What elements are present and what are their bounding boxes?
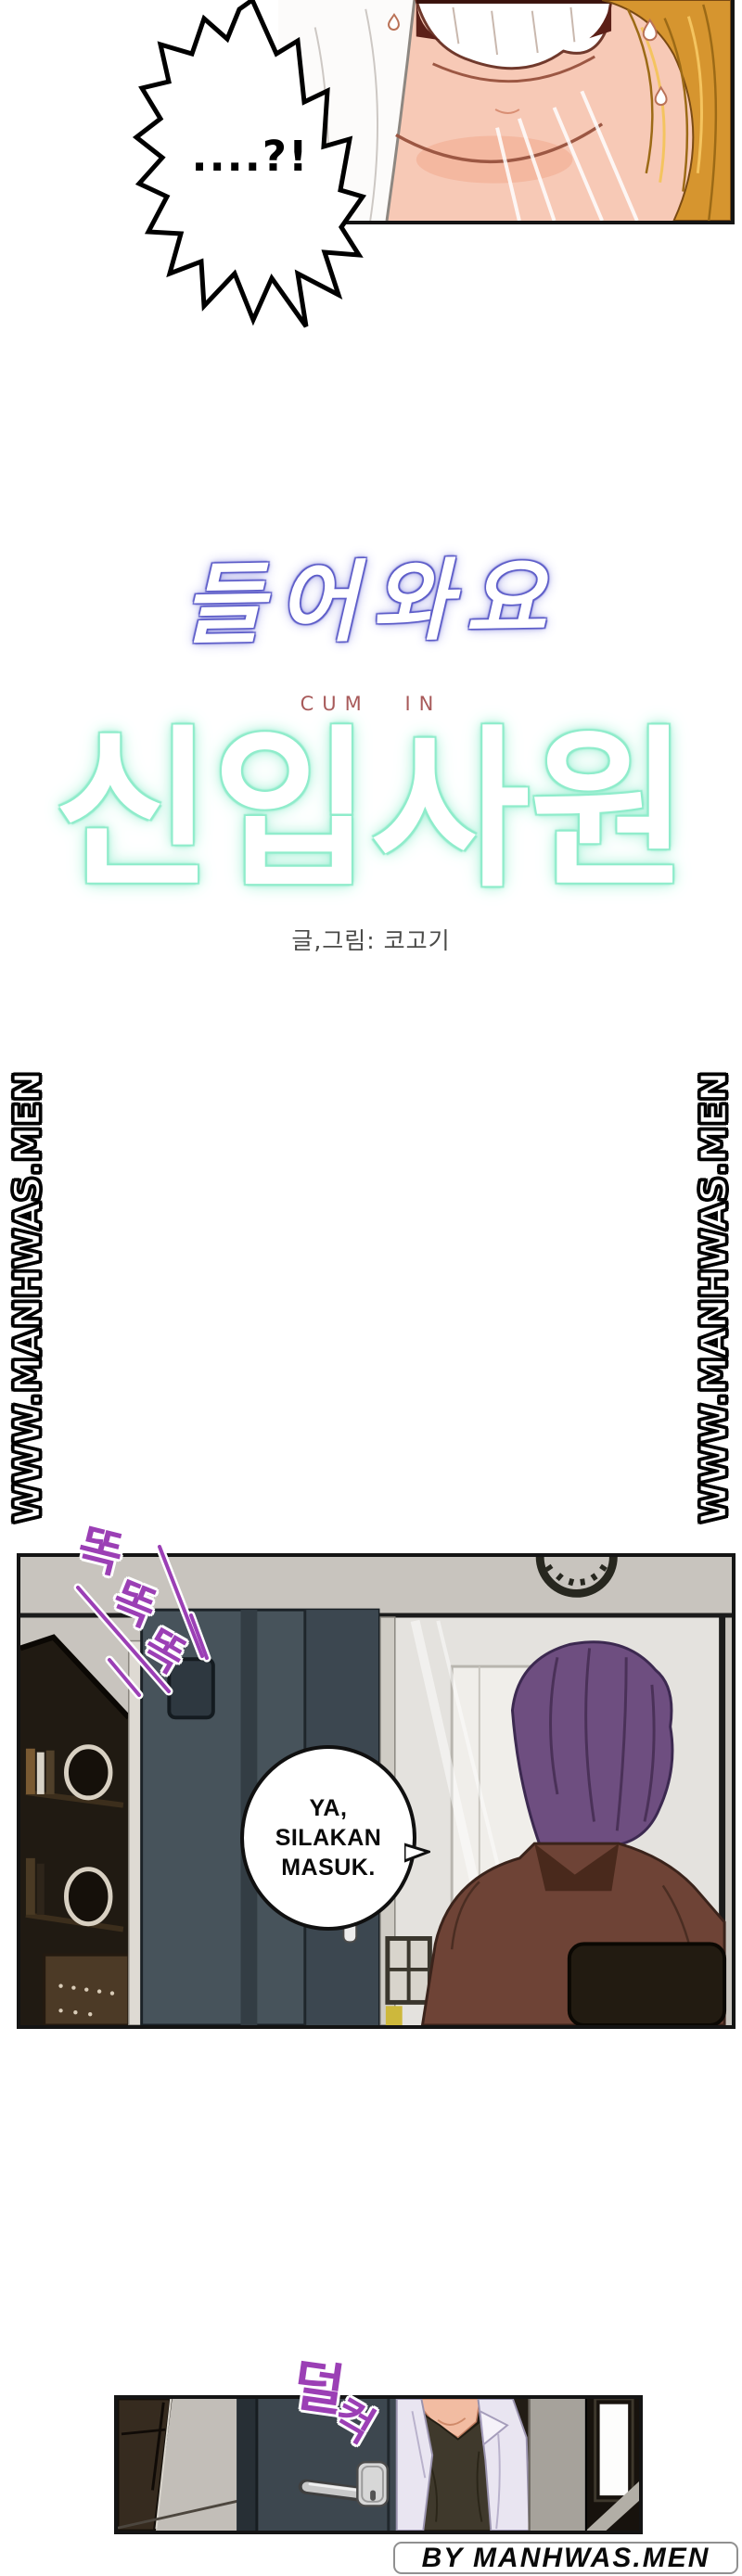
watermark-right: WWW.MANHWAS.MEN (694, 1103, 735, 1492)
watermark-left-text: WWW.MANHWAS.MEN (7, 1071, 49, 1523)
watermark-right-text: WWW.MANHWAS.MEN (694, 1071, 736, 1523)
hallway-doorframe (530, 2399, 639, 2531)
watermark-left: WWW.MANHWAS.MEN (7, 1103, 48, 1492)
title-credit: 글,그림: 코고기 (0, 923, 742, 956)
speech-line-1: YA, (310, 1793, 348, 1823)
speech-line-2: SILAKAN (275, 1823, 382, 1853)
wall-clock (540, 1557, 613, 1593)
speech-bubble-tail (404, 1842, 430, 1864)
speech-line-3: MASUK. (281, 1853, 376, 1882)
webtoon-page: ....?! 들어와요 CUM IN 신입사원 글,그림: 코고기 WWW.MA… (0, 0, 742, 2576)
shock-bubble-text: ....?! (116, 132, 385, 181)
office-speech-bubble: YA, SILAKAN MASUK. (240, 1745, 416, 1931)
title-main: 신입사원 (0, 714, 742, 907)
bottom-credit-badge: BY MANHWAS.MEN (393, 2542, 738, 2574)
chair-back (569, 1944, 724, 2025)
woman-entering (397, 2399, 530, 2531)
title-calligraphy: 들어와요 (0, 539, 742, 666)
shock-speech-bubble: ....?! (116, 0, 385, 334)
bottom-credit-text: BY MANHWAS.MEN (422, 2543, 710, 2574)
door-art (118, 2399, 639, 2531)
